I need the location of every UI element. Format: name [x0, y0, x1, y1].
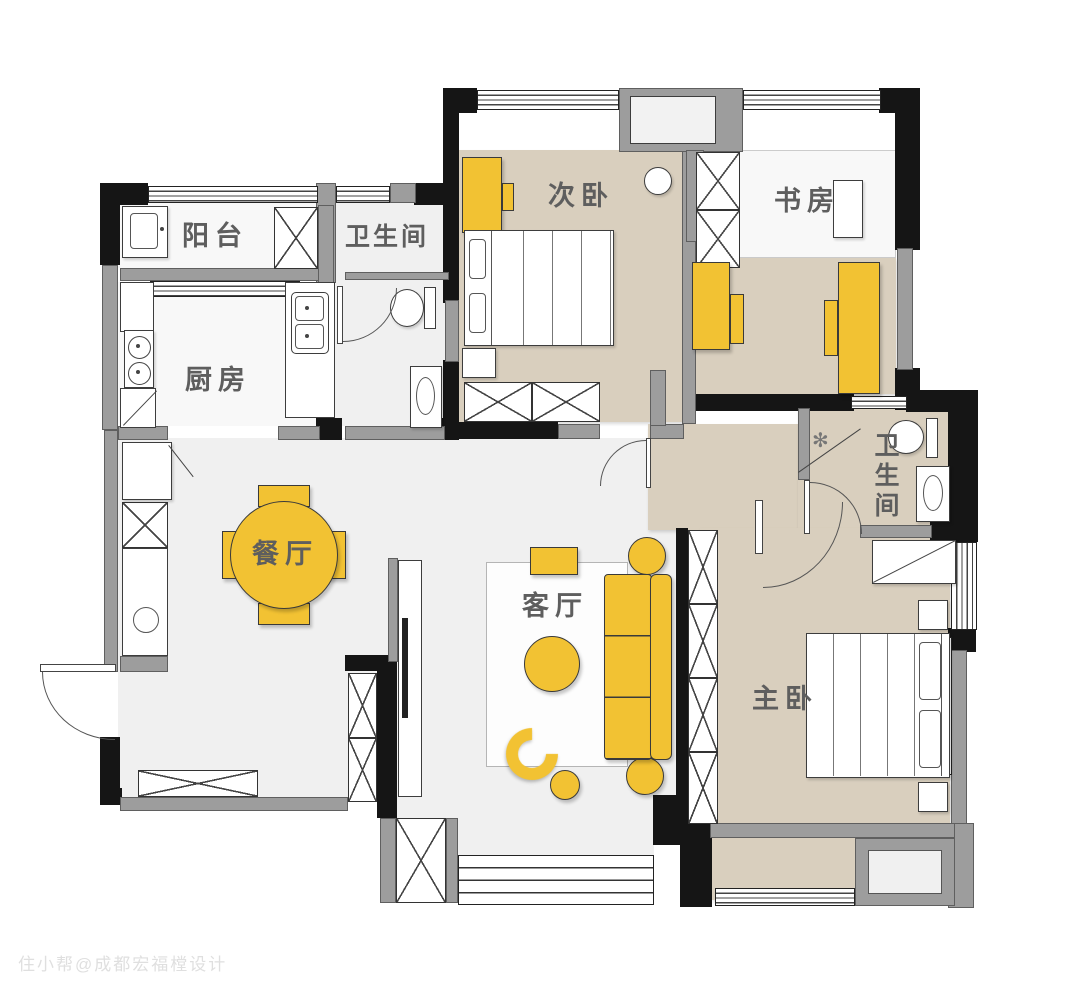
partition-wall	[860, 525, 932, 538]
fridge	[122, 442, 172, 500]
entry-door-leaf	[40, 664, 116, 672]
room-label-study: 书房	[774, 188, 840, 215]
pillow	[469, 239, 486, 279]
sofa-back	[650, 574, 672, 760]
side-table	[626, 757, 664, 795]
blanket-lines	[495, 231, 613, 345]
window	[477, 90, 619, 110]
bedroom2-cabinet-tab	[502, 183, 514, 211]
pillow	[469, 293, 486, 333]
partition-wall	[650, 370, 666, 426]
bed	[806, 633, 950, 778]
room-label-kitchen: 厨房	[185, 367, 251, 394]
bedroom2-wardrobe	[464, 382, 532, 422]
wall	[948, 628, 976, 652]
room-label-bathroom-master: 卫生间	[872, 432, 897, 522]
toilet-tank	[926, 418, 938, 458]
ceiling-lamp	[644, 167, 672, 195]
burner-icon	[128, 362, 151, 385]
wall	[100, 183, 120, 265]
headboard-line	[941, 634, 942, 776]
shower-icon: ✻	[812, 428, 829, 453]
kitchen-sink	[291, 292, 329, 354]
partition-wall	[446, 818, 458, 903]
utility-floor	[868, 850, 942, 894]
partition-wall	[445, 300, 459, 362]
nightstand	[462, 348, 496, 378]
study-wardrobe	[696, 210, 740, 268]
headboard-line	[491, 231, 492, 345]
window	[851, 396, 907, 409]
study-cabinet-tab	[824, 300, 838, 356]
room-label-master: 主卧	[752, 686, 818, 713]
toilet-tank	[424, 287, 436, 329]
floor-plan: ✻ 阳台 卫生间 厨房 次卧 书房 卫生间 餐厅 客厅 主卧 住小帮@成都宏福樘…	[0, 0, 1080, 1001]
room-label-balcony: 阳台	[182, 223, 248, 250]
study-cabinet	[838, 262, 880, 394]
study-desk	[692, 262, 730, 350]
shower-partition	[345, 272, 449, 280]
master-wardrobe	[688, 530, 718, 604]
partition-wall	[120, 797, 348, 811]
appliance-circle	[133, 607, 159, 633]
bathroom-vanity	[916, 466, 950, 522]
side-table	[628, 537, 666, 575]
basin	[416, 377, 435, 415]
master-wardrobe	[688, 752, 718, 824]
nightstand	[918, 600, 948, 630]
balcony-storage	[396, 818, 446, 903]
kitchen-counter	[120, 282, 154, 332]
living-window	[458, 855, 654, 905]
partition-wall	[380, 818, 396, 903]
partition-wall	[120, 656, 168, 672]
partition-wall	[278, 426, 320, 440]
pillow	[919, 710, 941, 768]
partition-wall	[118, 426, 168, 440]
window	[743, 90, 881, 110]
master-cabinet	[872, 540, 956, 584]
pantry-cabinet	[348, 673, 377, 738]
tv	[402, 618, 408, 718]
partition-wall	[710, 823, 955, 838]
balcony-slider	[150, 281, 300, 297]
burner-icon	[128, 336, 151, 359]
faucet	[305, 334, 309, 338]
partition-wall	[345, 426, 445, 440]
wall	[377, 655, 397, 818]
room-label-bedroom2: 次卧	[548, 183, 614, 210]
storage-column	[122, 548, 168, 656]
stove	[124, 330, 154, 388]
coffee-table	[524, 636, 580, 692]
partition-wall	[558, 424, 600, 439]
sofa-seats	[604, 574, 652, 760]
sink-basin	[295, 324, 324, 349]
faucet	[305, 306, 309, 310]
window	[336, 186, 390, 203]
pillow	[919, 642, 941, 700]
bay-niche	[630, 96, 716, 144]
master-wardrobe	[688, 678, 718, 752]
room-label-dining: 餐厅	[252, 541, 318, 568]
room-label-bathroom-top: 卫生间	[345, 225, 429, 250]
bedroom2-door-leaf	[646, 438, 651, 488]
shoe-cabinet	[138, 770, 258, 797]
wall	[443, 422, 558, 439]
bed	[464, 230, 614, 346]
wall	[895, 88, 920, 250]
partition-wall	[102, 265, 118, 430]
partition-wall	[390, 183, 416, 203]
wall	[653, 795, 683, 845]
washing-machine	[122, 206, 168, 258]
corner-diagonal	[123, 390, 157, 425]
master-wardrobe	[688, 604, 718, 678]
partition-wall	[650, 424, 684, 439]
partition-wall	[951, 650, 967, 825]
pantry-cabinet	[348, 738, 377, 802]
room-label-living: 客厅	[522, 593, 588, 620]
tall-cabinet	[122, 502, 168, 548]
nightstand	[918, 782, 948, 812]
wall	[443, 88, 477, 113]
wall	[906, 390, 952, 412]
entry-door-arc	[42, 672, 115, 740]
bathroom-vanity	[410, 366, 442, 428]
cabinet-diagonal	[873, 540, 955, 583]
study-wardrobe	[696, 152, 740, 210]
study-chair	[730, 294, 744, 344]
window	[715, 888, 855, 906]
blanket-lines	[807, 634, 919, 776]
basin	[923, 475, 943, 511]
partition-wall	[897, 248, 913, 370]
ottoman	[550, 770, 580, 800]
watermark-text: 住小帮@成都宏福樘设计	[18, 950, 227, 975]
balcony-cabinet	[274, 207, 318, 269]
washer-knob	[160, 227, 164, 231]
bedroom2-wardrobe	[532, 382, 600, 422]
tv-wall-strip	[388, 558, 398, 662]
sideboard	[530, 547, 578, 575]
corner-unit	[120, 388, 156, 428]
wall	[100, 788, 122, 805]
partition-wall	[104, 430, 118, 672]
partition-wall	[120, 268, 320, 281]
master-door-leaf	[755, 500, 763, 554]
wall	[696, 394, 854, 411]
sink-basin	[295, 296, 324, 321]
washer-door	[130, 213, 158, 249]
bedroom2-cabinet	[462, 157, 502, 233]
window	[148, 186, 318, 203]
